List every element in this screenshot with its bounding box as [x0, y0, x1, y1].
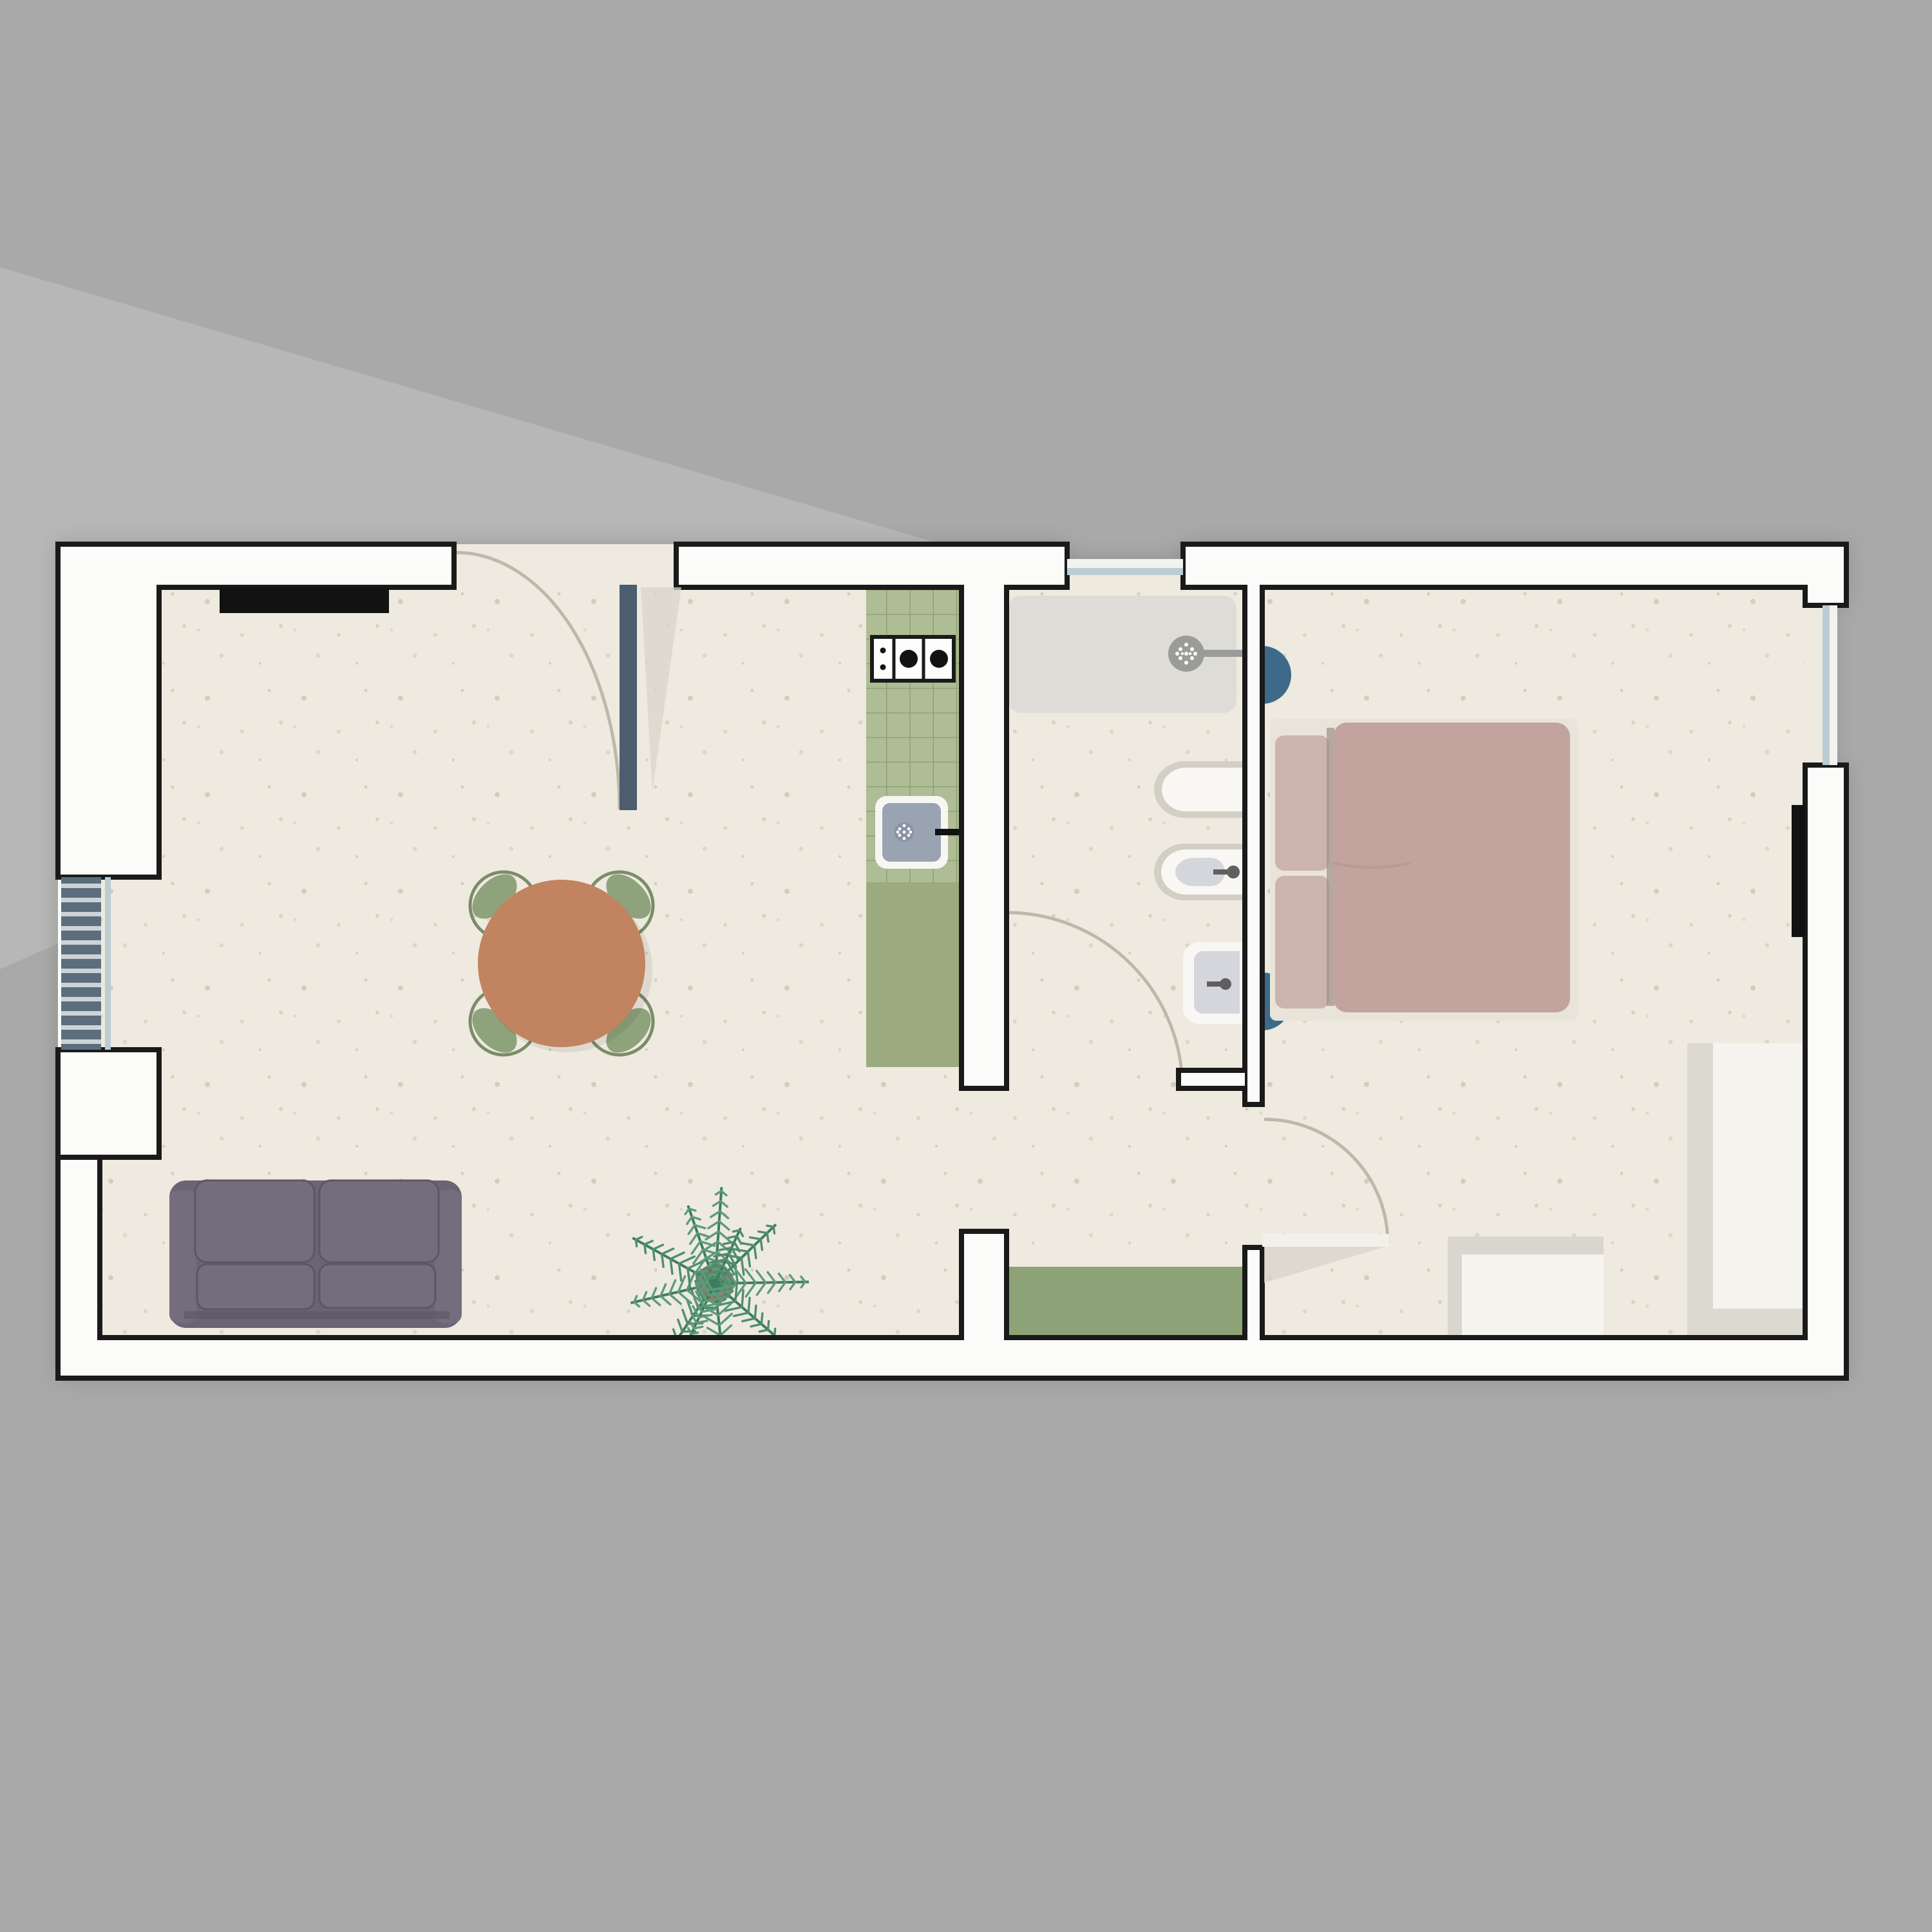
window-glass-line [1067, 568, 1183, 575]
wall-left-block [58, 1050, 159, 1157]
sofa-front-edge [184, 1311, 450, 1319]
floor-plan-canvas [0, 0, 1932, 1932]
burner-icon [930, 650, 948, 668]
bedroom-door-leaf [1262, 1234, 1389, 1247]
window-glass-line [105, 877, 111, 1050]
dining-set [464, 866, 659, 1061]
sofa [169, 1180, 462, 1328]
sofa-armrest [169, 1190, 196, 1323]
burner-icon [900, 650, 918, 668]
hob-knob-icon [880, 648, 886, 654]
bedroom-window [1823, 605, 1837, 765]
pillow [1275, 735, 1329, 871]
kitchen-counter-plain [866, 882, 960, 1067]
bidet [1154, 844, 1243, 900]
double-bed [1270, 719, 1578, 1021]
bathroom-basin [1183, 942, 1243, 1024]
sofa-seat-cushion [319, 1264, 435, 1308]
sofa-back-cushion [195, 1180, 314, 1262]
tv-panel [1792, 805, 1805, 937]
wall-niche [220, 587, 389, 613]
bathroom-window [1067, 559, 1183, 575]
wall-bathroom-bottom-stub [1179, 1070, 1245, 1088]
toilet [1154, 761, 1243, 818]
hob-knob-icon [880, 665, 886, 670]
sofa-seat-cushion [197, 1264, 314, 1309]
pillow [1275, 876, 1329, 1009]
gas-hob [872, 637, 954, 681]
dining-table [478, 880, 645, 1047]
entry-door-leaf [620, 585, 637, 810]
window-glass-line [1823, 605, 1830, 765]
dresser [1448, 1236, 1604, 1338]
door-mat [1007, 1267, 1245, 1338]
sofa-back-cushion [319, 1180, 439, 1262]
wardrobe [1687, 1043, 1806, 1338]
